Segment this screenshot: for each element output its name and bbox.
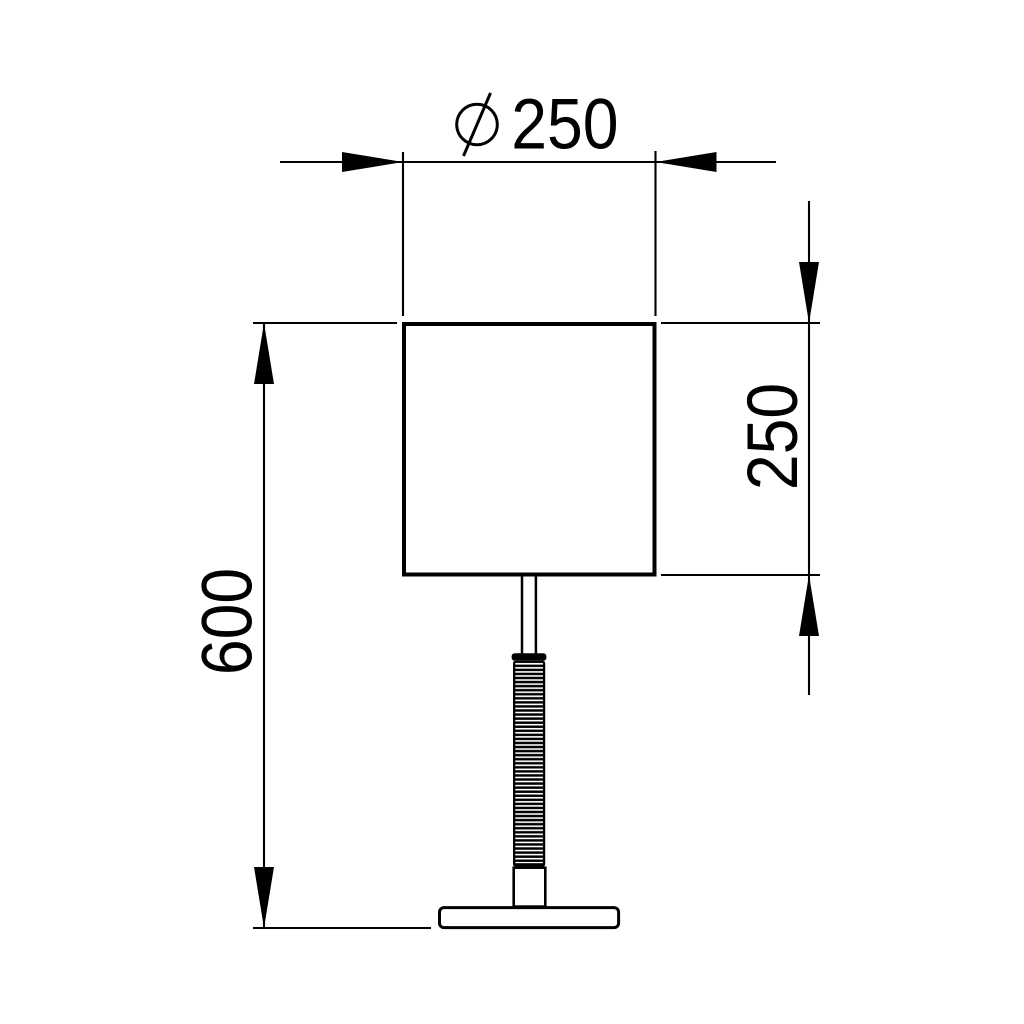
svg-text:250: 250 — [511, 86, 618, 165]
svg-text:250: 250 — [734, 383, 813, 490]
svg-text:600: 600 — [189, 568, 268, 675]
